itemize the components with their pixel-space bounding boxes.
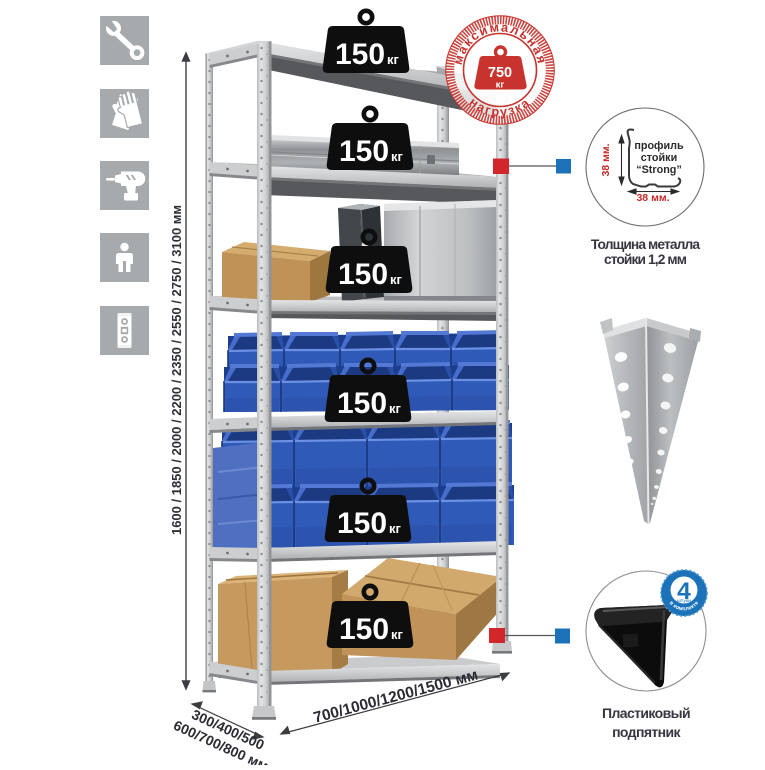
svg-text:подпятник: подпятник [612, 724, 681, 740]
svg-text:штуки: штуки [677, 598, 691, 603]
svg-text:38 мм.: 38 мм. [636, 192, 669, 204]
svg-text:38 мм.: 38 мм. [600, 143, 612, 176]
svg-text:Толщина металла: Толщина металла [591, 237, 700, 252]
svg-text:профиль: профиль [634, 140, 684, 152]
svg-text:стойки 1,2 мм: стойки 1,2 мм [604, 252, 687, 267]
svg-text:1600 / 1850 / 2000 / 2200 / 23: 1600 / 1850 / 2000 / 2200 / 2350 / 2550 … [169, 205, 184, 535]
svg-text:кг: кг [496, 80, 505, 91]
svg-text:Пластиковый: Пластиковый [602, 705, 690, 721]
svg-text:стойки: стойки [641, 152, 677, 164]
svg-text:“Strong”: “Strong” [636, 164, 682, 176]
